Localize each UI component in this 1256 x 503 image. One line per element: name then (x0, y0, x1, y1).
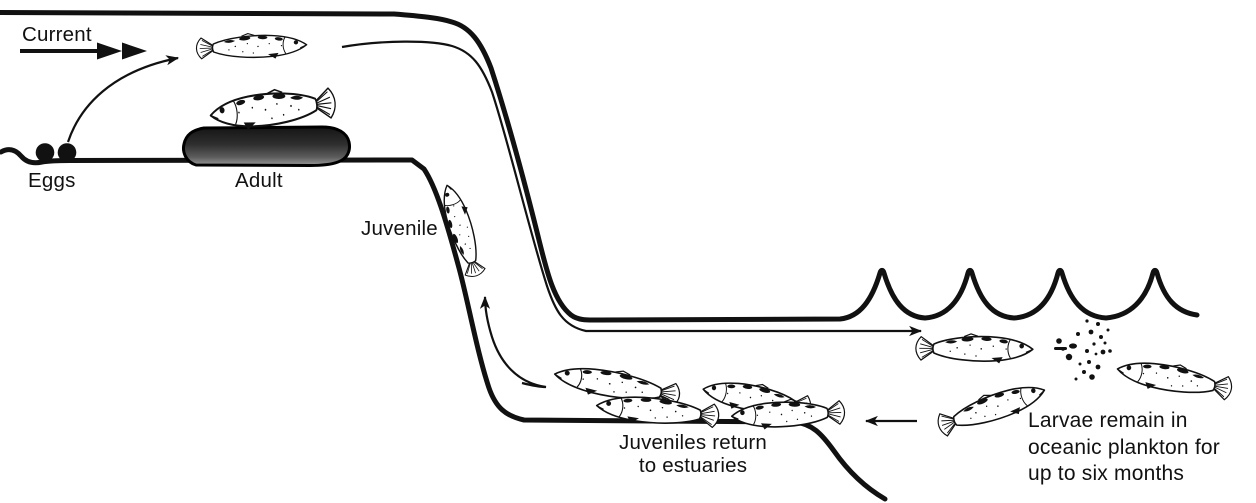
ascent-arrow (485, 297, 546, 387)
ocean-larva-3 (1115, 354, 1234, 403)
ocean-larva-1 (916, 333, 1033, 363)
larvae-note-line-1: Larvae remain in (1028, 408, 1220, 435)
current-arrowhead-2 (122, 43, 147, 60)
drift-current-arrow (342, 42, 921, 331)
juveniles-return-line-1: Juveniles return (583, 431, 803, 454)
adult-label: Adult (235, 169, 283, 193)
larvae-note-line-2: oceanic plankton for (1028, 435, 1220, 462)
juveniles-return-label: Juveniles return to estuaries (583, 431, 803, 477)
juvenile-label: Juvenile (361, 217, 438, 241)
adult-rock (184, 127, 350, 166)
larva-fish-icon (196, 32, 307, 62)
larvae-plankton-note: Larvae remain in oceanic plankton for up… (1028, 408, 1220, 488)
eggs-label: Eggs (28, 169, 76, 193)
juveniles-return-line-2: to estuaries (583, 454, 803, 477)
plankton-dots (1054, 319, 1112, 380)
juvenile-fish-icon (434, 181, 488, 280)
fish-life-cycle-diagram: Current Eggs Adult Juvenile Juveniles re… (0, 0, 1256, 503)
water-surface-line (0, 13, 1197, 321)
current-label: Current (22, 23, 92, 47)
larvae-note-line-3: up to six months (1028, 461, 1220, 488)
egg-to-larva-arrow (68, 58, 178, 142)
current-arrowhead-1 (97, 43, 122, 60)
